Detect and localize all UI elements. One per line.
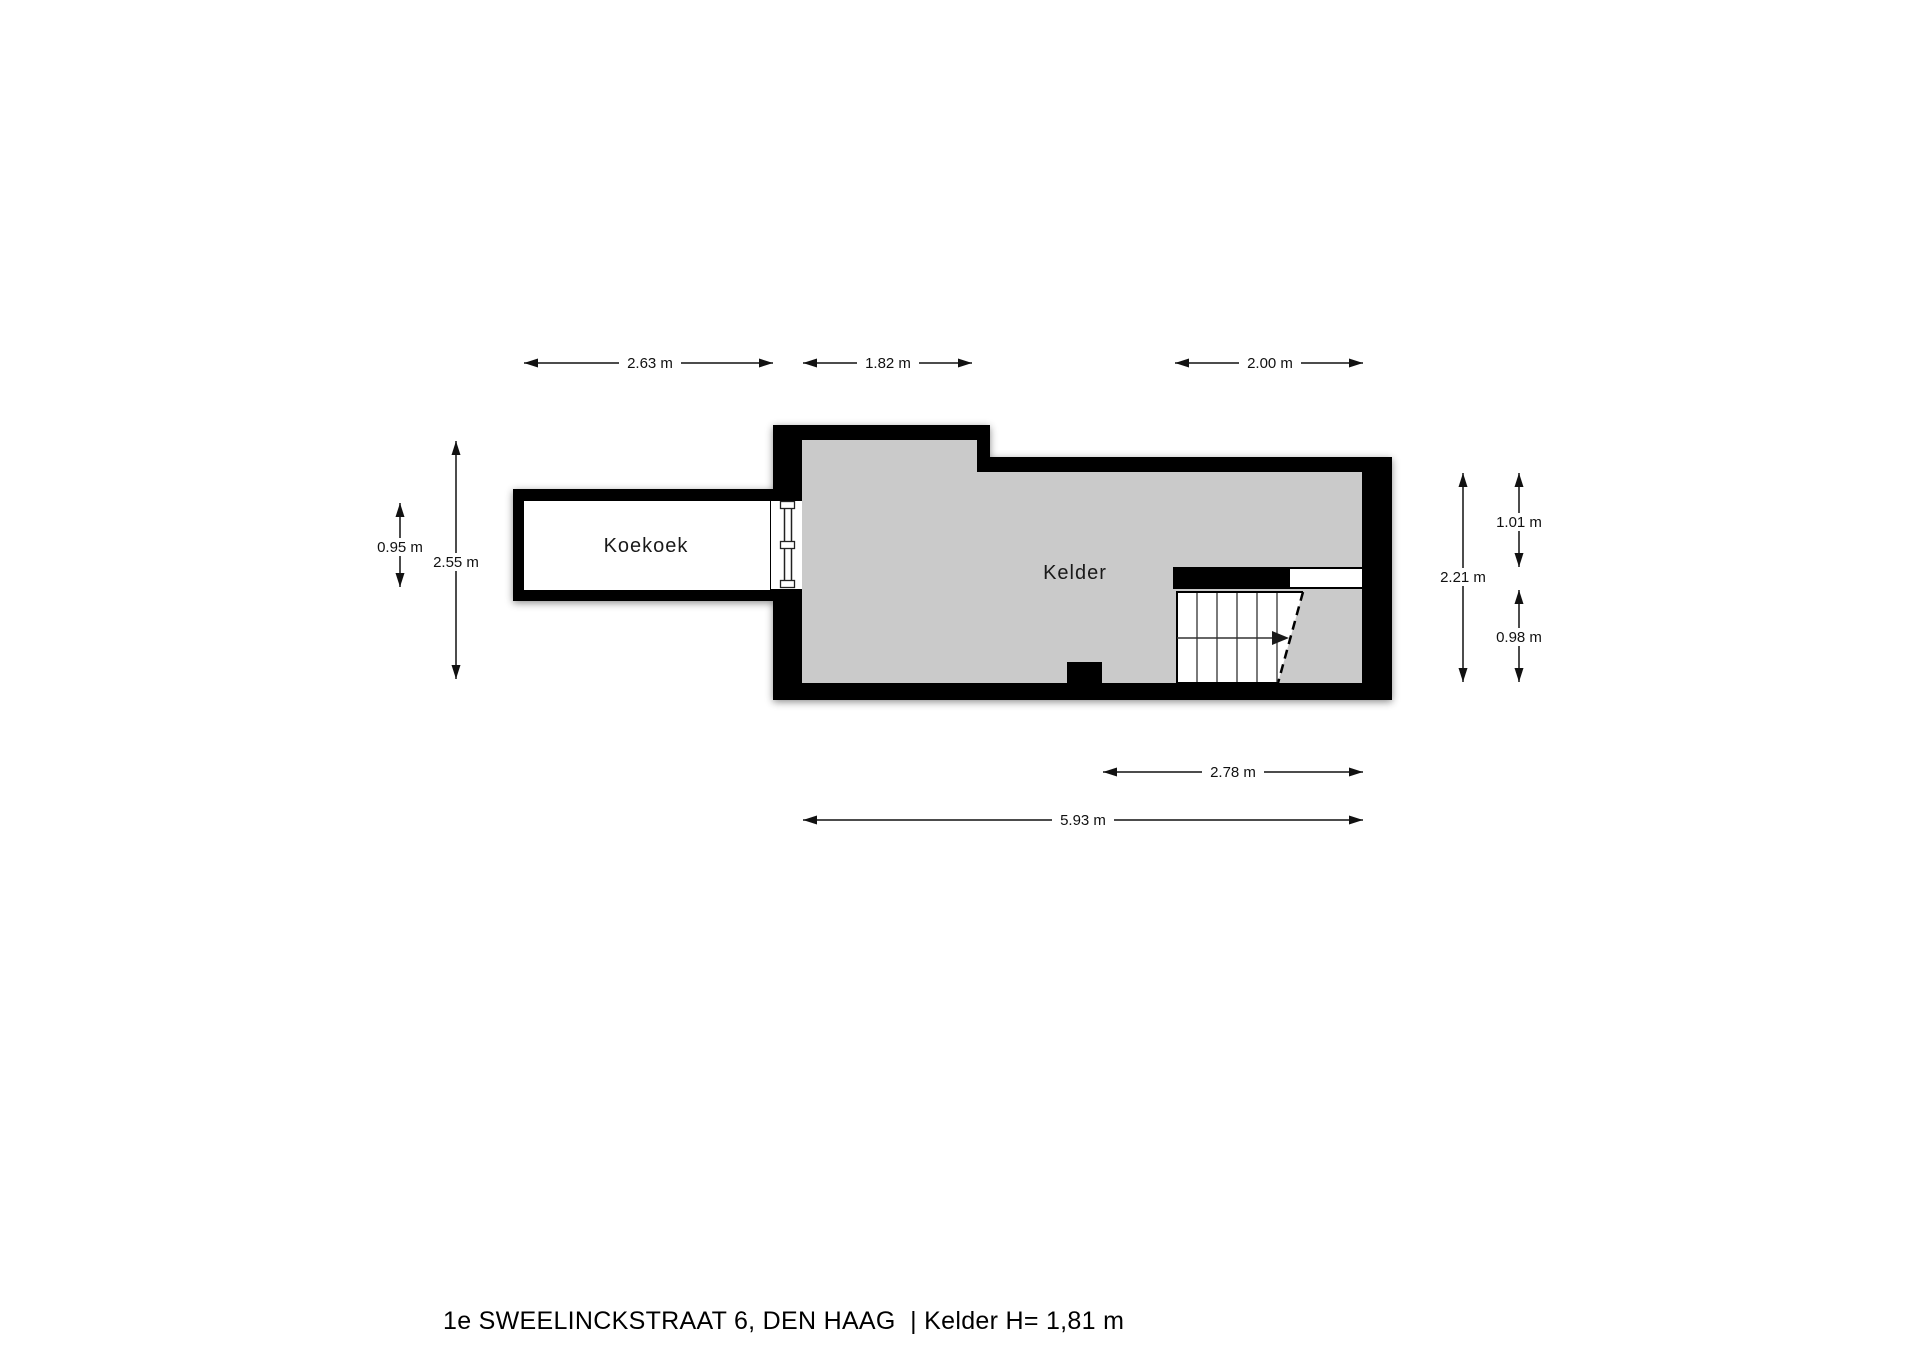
dimension-left-0: 0.95 m	[369, 503, 431, 587]
dimension-bottom-1: 5.93 m	[803, 811, 1363, 829]
dimension-bottom-0: 2.78 m	[1103, 763, 1363, 781]
dimension-label: 2.00 m	[1247, 355, 1293, 372]
wall-pier	[1067, 662, 1102, 683]
dimension-label: 1.01 m	[1496, 514, 1542, 531]
dimension-label: 2.78 m	[1210, 764, 1256, 781]
dimension-label: 2.55 m	[433, 554, 479, 571]
room-label-kelder: Kelder	[1043, 562, 1107, 584]
plan-title: 1e SWEELINCKSTRAAT 6, DEN HAAG | Kelder …	[443, 1307, 1124, 1336]
dimension-top-0: 2.63 m	[524, 354, 773, 372]
dimension-top-1: 1.82 m	[803, 354, 972, 372]
dimension-right-2: 0.98 m	[1488, 590, 1550, 682]
dimension-label: 0.98 m	[1496, 629, 1542, 646]
dimension-right-0: 2.21 m	[1432, 473, 1494, 682]
stair-opening	[1290, 567, 1362, 589]
window-icon	[771, 501, 802, 589]
dimension-label: 2.63 m	[627, 355, 673, 372]
dimension-top-2: 2.00 m	[1175, 354, 1363, 372]
room-label-koekoek: Koekoek	[604, 535, 689, 557]
dimension-label: 1.82 m	[865, 355, 911, 372]
dimension-label: 2.21 m	[1440, 569, 1486, 586]
stair-head-wall	[1173, 567, 1290, 589]
floorplan-canvas: Koekoek Kelder 2.63 m 1.82 m 2.00 m	[0, 0, 1920, 1358]
dimension-right-1: 1.01 m	[1488, 473, 1550, 567]
floorplan-page: Koekoek Kelder 2.63 m 1.82 m 2.00 m	[0, 0, 1920, 1358]
dimension-left-1: 2.55 m	[425, 441, 487, 679]
dimension-label: 5.93 m	[1060, 812, 1106, 829]
dimension-label: 0.95 m	[377, 539, 423, 556]
